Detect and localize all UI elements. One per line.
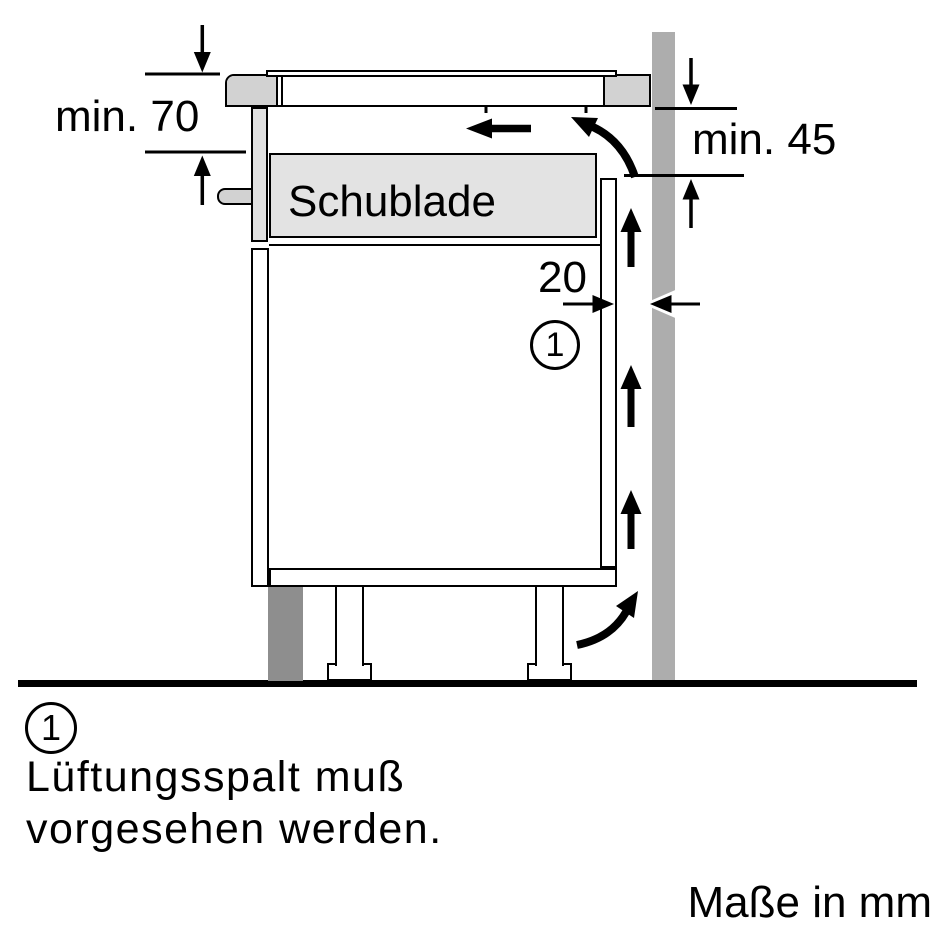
dim-min70-label: min. 70 xyxy=(55,95,199,139)
dim-min70-arrow-down-head xyxy=(194,52,211,73)
legend-callout-circle: 1 xyxy=(25,702,77,754)
worktop xyxy=(225,74,651,107)
worktop-front-edge xyxy=(227,76,278,105)
leg-rear-shaft xyxy=(535,587,564,666)
vent-arrow-2-head xyxy=(621,365,642,389)
drawer-rail xyxy=(269,238,601,246)
floor-line xyxy=(18,680,917,687)
callout-1-circle: 1 xyxy=(530,320,580,370)
legend-text-line1: Lüftungsspalt muß xyxy=(26,756,405,799)
hob-glass-slab xyxy=(266,70,617,77)
cabinet-side-panel xyxy=(251,248,269,587)
vent-arrow-1-head xyxy=(621,208,642,232)
wall-section xyxy=(652,32,675,681)
airflow-curve-top-path xyxy=(593,127,635,177)
dim-min45-label: min. 45 xyxy=(692,118,836,162)
plinth-airflow-arrow xyxy=(577,591,638,645)
dim-min45-arrow-up-head xyxy=(683,179,700,200)
airflow-curve-bottom-path xyxy=(577,612,626,645)
dim-min45-arrow-down-head xyxy=(683,85,700,106)
worktop-rear-edge xyxy=(603,76,649,105)
dim-gap-20-label: 20 xyxy=(538,256,587,300)
drawer-label: Schublade xyxy=(288,180,496,224)
cabinet-bottom-shelf xyxy=(269,568,617,587)
airflow-curve-bottom-head xyxy=(616,591,638,618)
airflow-curve-top-head xyxy=(571,117,598,137)
cabinet-rear-panel xyxy=(600,178,617,568)
callout-1-number: 1 xyxy=(546,326,565,365)
legend-callout-number: 1 xyxy=(41,707,61,749)
units-note: Maße in mm xyxy=(660,881,932,925)
dim-min70-arrow-up-head xyxy=(194,156,211,177)
leg-front-shaft xyxy=(335,587,364,666)
vent-arrow-3-head xyxy=(621,490,642,514)
installation-diagram: Schublade xyxy=(0,0,935,934)
airflow-left-head xyxy=(466,119,492,139)
legend-text-line2: vorgesehen werden. xyxy=(26,808,443,851)
plinth xyxy=(268,587,303,681)
worktop-joint-line xyxy=(281,76,283,105)
cabinet-front-panel xyxy=(251,107,268,242)
drawer-handle xyxy=(217,188,255,205)
vent-airflow-arrows xyxy=(621,208,642,549)
